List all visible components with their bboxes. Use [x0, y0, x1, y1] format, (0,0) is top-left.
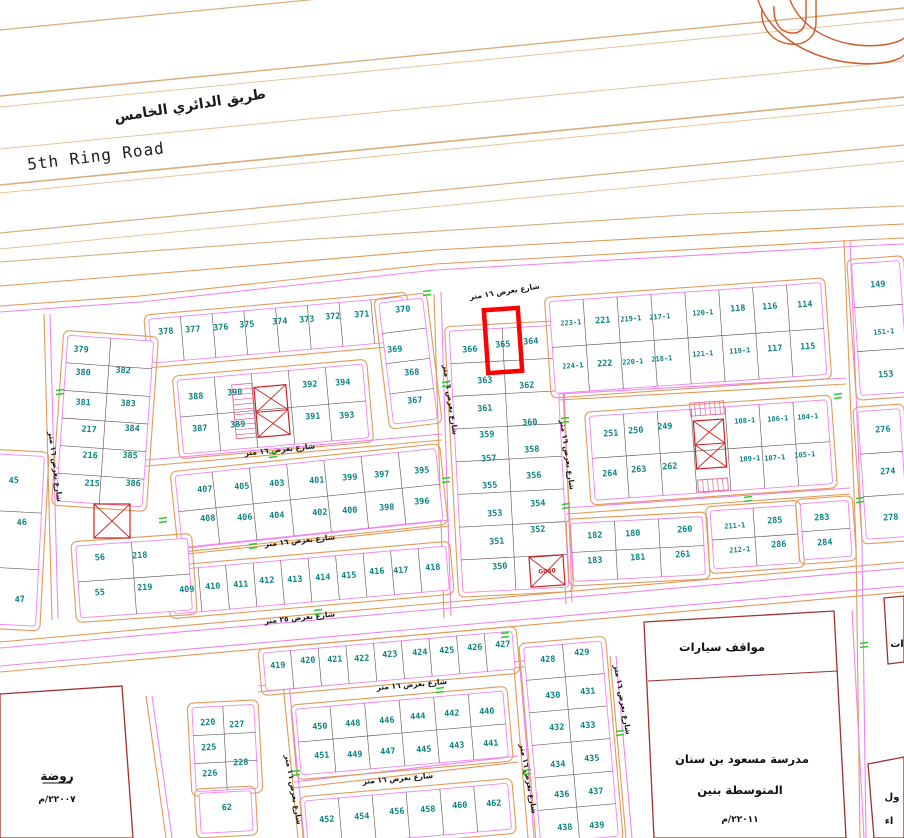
plot-label-449: 449 [347, 749, 363, 760]
plot-label-56: 56 [94, 553, 105, 564]
parcel-block [166, 541, 455, 619]
plot-label-116: 116 [762, 301, 778, 312]
landmark-label: ٢٢٠٠٧/م [38, 795, 76, 805]
ring-road-label-en: 5th Ring Road [26, 138, 166, 174]
plot-label-180: 180 [625, 528, 641, 539]
plot-label-183: 183 [587, 555, 603, 566]
parcel-block [300, 778, 517, 838]
plot-label-387: 387 [192, 423, 208, 434]
plot-label-364: 364 [523, 336, 539, 347]
plot-label-383: 383 [120, 399, 136, 410]
street-name-label: شارع بعرض ١٦ متر [612, 663, 633, 735]
plot-label-462: 462 [486, 798, 502, 809]
plot-label-218: 218 [132, 550, 148, 561]
plot-label-108-1: 108-1 [734, 416, 756, 425]
street-name-label: شارع بعرض ٢٥ متر [263, 609, 335, 625]
plot-label-228: 228 [233, 757, 249, 768]
plot-label-411: 411 [233, 579, 249, 590]
plot-label-283: 283 [814, 512, 830, 523]
plot-label-420: 420 [300, 655, 316, 666]
plot-label-443: 443 [449, 740, 465, 751]
parcel-block [585, 395, 838, 505]
plot-label-226: 226 [202, 768, 218, 779]
plot-label-249: 249 [657, 421, 673, 432]
plot-label-423: 423 [382, 649, 398, 660]
parcel-block [187, 700, 263, 797]
plot-label-395: 395 [414, 465, 430, 476]
plot-label-448: 448 [345, 718, 361, 729]
plot-label-355: 355 [482, 480, 498, 491]
plot-label-376: 376 [213, 322, 229, 333]
plot-label-250: 250 [628, 425, 644, 436]
plot-label-431: 431 [580, 686, 596, 697]
plot-label-439: 439 [589, 820, 605, 831]
plot-label-367: 367 [407, 395, 423, 406]
plot-label-284: 284 [817, 537, 833, 548]
plot-label-456: 456 [389, 806, 405, 817]
plot-label-212-1: 212-1 [729, 545, 751, 554]
plot-label-446: 446 [379, 715, 395, 726]
plot-label-104-1: 104-1 [797, 412, 819, 421]
plot-label-274: 274 [880, 466, 896, 477]
plot-label-407: 407 [197, 484, 213, 495]
plot-label-217-1: 217-1 [649, 312, 671, 321]
plot-label-452: 452 [319, 814, 335, 825]
plot-label-119-1: 119-1 [729, 346, 751, 355]
plot-label-418: 418 [425, 562, 441, 573]
landmark-label: ات [890, 639, 903, 650]
plot-label-372: 372 [325, 311, 341, 322]
plot-label-384: 384 [124, 424, 140, 435]
landmark-label: اء [885, 816, 894, 827]
landmark-label: ٢٢٠١١/م [721, 815, 758, 825]
plot-label-403: 403 [269, 478, 285, 489]
plot-label-454: 454 [354, 811, 370, 822]
landmark-label: مدرسة مسعود بن سنان [675, 752, 809, 767]
plot-label-219-1: 219-1 [620, 314, 642, 323]
plot-label-227: 227 [229, 719, 245, 730]
plot-label-406: 406 [237, 512, 253, 523]
plot-label-397: 397 [374, 469, 390, 480]
plot-label-435: 435 [584, 753, 600, 764]
plot-label-181: 181 [630, 552, 646, 563]
plot-label-55: 55 [94, 588, 105, 599]
plot-label-445: 445 [416, 744, 432, 755]
plot-label-351: 351 [489, 536, 505, 547]
plot-label-375: 375 [239, 319, 255, 330]
parcel-block [795, 496, 856, 565]
plot-label-394: 394 [335, 377, 351, 388]
plot-label-438: 438 [557, 822, 573, 833]
plot-label-442: 442 [444, 708, 460, 719]
plot-label-450: 450 [312, 721, 328, 732]
plot-label-359: 359 [479, 429, 495, 440]
plot-label-221: 221 [595, 315, 611, 326]
plot-label-224-1: 224-1 [562, 361, 584, 370]
plot-label-369: 369 [387, 344, 403, 355]
plot-label-120-1: 120-1 [692, 308, 714, 317]
plot-label-374: 374 [272, 316, 288, 327]
plot-label-415: 415 [341, 570, 357, 581]
plot-label-408: 408 [200, 513, 216, 524]
plot-label-260: 260 [677, 524, 693, 535]
plot-label-354: 354 [530, 498, 546, 509]
plot-label-390: 390 [227, 387, 243, 398]
cadastral-map: طريق الدائري الخامس 5th Ring Road G04037… [0, 0, 904, 838]
plot-label-353: 353 [487, 508, 503, 519]
plot-label-352: 352 [530, 524, 546, 535]
plot-label-211-1: 211-1 [724, 521, 746, 530]
plot-label-121-1: 121-1 [692, 349, 714, 358]
plot-label-426: 426 [467, 642, 483, 653]
plot-label-430: 430 [545, 690, 561, 701]
parcel-block [52, 330, 159, 511]
plot-label-391: 391 [305, 411, 321, 422]
plot-label-362: 362 [519, 380, 535, 391]
plot-label-220-1: 220-1 [622, 357, 644, 366]
plot-label-153: 153 [878, 369, 894, 380]
plot-label-47: 47 [14, 595, 25, 606]
plot-label-350: 350 [492, 561, 508, 572]
plot-label-414: 414 [315, 572, 331, 583]
plot-label-377: 377 [185, 324, 201, 335]
plot-label-264: 264 [602, 468, 618, 479]
plot-label-393: 393 [339, 410, 355, 421]
plot-label-389: 389 [230, 419, 246, 430]
plot-label-223-1: 223-1 [560, 318, 582, 327]
landmark-label: المتوسطة بنين [697, 783, 782, 798]
plot-label-286: 286 [771, 539, 787, 550]
plot-label-151-1: 151-1 [873, 327, 895, 336]
landmark-label: ول [885, 792, 900, 803]
plot-label-424: 424 [412, 647, 428, 658]
plot-label-379: 379 [73, 345, 89, 356]
parcel-block [705, 500, 804, 573]
plot-label-413: 413 [287, 574, 303, 585]
plot-label-285: 285 [767, 515, 783, 526]
plot-label-361: 361 [477, 403, 493, 414]
plot-label-251: 251 [603, 428, 619, 439]
plot-label-429: 429 [574, 647, 590, 658]
parcel-block [71, 533, 197, 622]
plot-label-417: 417 [393, 565, 409, 576]
substation-label: G040 [538, 567, 556, 575]
plot-label-416: 416 [369, 566, 385, 577]
plot-label-378: 378 [158, 326, 174, 337]
plot-label-261: 261 [675, 549, 691, 560]
plot-label-358: 358 [524, 444, 540, 455]
plot-label-404: 404 [269, 510, 285, 521]
plot-label-441: 441 [483, 738, 499, 749]
plot-label-451: 451 [314, 750, 330, 761]
plot-label-422: 422 [354, 653, 370, 664]
plot-label-107-1: 107-1 [764, 453, 786, 462]
plot-label-433: 433 [580, 720, 596, 731]
plot-label-360: 360 [522, 417, 538, 428]
plot-label-385: 385 [122, 451, 138, 462]
plot-label-437: 437 [588, 786, 604, 797]
landmark-label: مواقف سيارات [679, 640, 765, 655]
plot-label-363: 363 [477, 375, 493, 386]
plot-label-217: 217 [81, 425, 97, 436]
plot-label-373: 373 [299, 314, 315, 325]
plot-label-262: 262 [662, 461, 678, 472]
plot-label-380: 380 [75, 368, 91, 379]
plot-label-427: 427 [495, 639, 511, 650]
plot-label-215: 215 [84, 479, 100, 490]
plot-label-45: 45 [8, 476, 19, 487]
plot-label-278: 278 [883, 512, 899, 523]
plot-label-398: 398 [379, 502, 395, 513]
plot-label-371: 371 [354, 309, 370, 320]
plot-label-432: 432 [549, 722, 565, 733]
plot-label-460: 460 [452, 800, 468, 811]
plot-label-412: 412 [259, 575, 275, 586]
street-name-label: شارع بعرض ١٦ متر [468, 282, 540, 302]
plot-label-381: 381 [75, 398, 91, 409]
plot-label-182: 182 [587, 530, 603, 541]
plot-label-365: 365 [495, 339, 511, 350]
parcel-block [291, 686, 514, 780]
parcel-block [544, 278, 831, 398]
plot-label-115: 115 [800, 341, 816, 352]
plot-label-410: 410 [205, 581, 221, 592]
plot-label-458: 458 [420, 804, 436, 815]
plot-label-434: 434 [550, 759, 566, 770]
landmark-label: روضة [40, 769, 73, 784]
plot-label-263: 263 [631, 464, 647, 475]
plot-label-402: 402 [312, 507, 328, 518]
plot-label-117: 117 [767, 343, 783, 354]
plot-label-444: 444 [410, 711, 426, 722]
plot-label-216: 216 [82, 451, 98, 462]
plot-label-370: 370 [395, 304, 411, 315]
plot-label-366: 366 [462, 344, 478, 355]
plot-label-62: 62 [221, 803, 232, 814]
plot-label-405: 405 [234, 481, 250, 492]
plot-label-388: 388 [188, 391, 204, 402]
plot-label-105-1: 105-1 [794, 450, 816, 459]
plot-label-219: 219 [137, 582, 153, 593]
plot-label-382: 382 [115, 366, 131, 377]
plot-label-419: 419 [270, 660, 286, 671]
parcel-block [172, 359, 373, 459]
plot-label-428: 428 [540, 654, 556, 665]
plot-label-447: 447 [380, 746, 396, 757]
plot-label-421: 421 [327, 654, 343, 665]
plot-label-149: 149 [870, 279, 886, 290]
plot-label-401: 401 [309, 475, 325, 486]
plot-label-399: 399 [342, 472, 358, 483]
plot-label-109-1: 109-1 [739, 454, 761, 463]
plot-label-114: 114 [797, 299, 813, 310]
parcel-block [144, 292, 412, 368]
plot-label-106-1: 106-1 [767, 414, 789, 423]
plot-label-225: 225 [201, 742, 217, 753]
plot-label-222: 222 [597, 358, 613, 369]
plot-label-440: 440 [479, 706, 495, 717]
plot-label-392: 392 [302, 379, 318, 390]
plot-label-409: 409 [179, 584, 195, 595]
plot-label-118: 118 [730, 303, 746, 314]
plot-label-396: 396 [414, 496, 430, 507]
plot-label-436: 436 [554, 789, 570, 800]
ring-road-label-ar: طريق الدائري الخامس [113, 86, 267, 127]
plot-label-218-1: 218-1 [651, 354, 673, 363]
plot-label-425: 425 [439, 645, 455, 656]
plot-label-386: 386 [125, 479, 141, 490]
plot-label-46: 46 [16, 518, 27, 529]
plot-label-276: 276 [875, 424, 891, 435]
plot-label-356: 356 [526, 470, 542, 481]
plot-label-368: 368 [404, 367, 420, 378]
plot-label-400: 400 [342, 505, 358, 516]
plot-label-220: 220 [200, 717, 216, 728]
plot-label-357: 357 [481, 453, 497, 464]
